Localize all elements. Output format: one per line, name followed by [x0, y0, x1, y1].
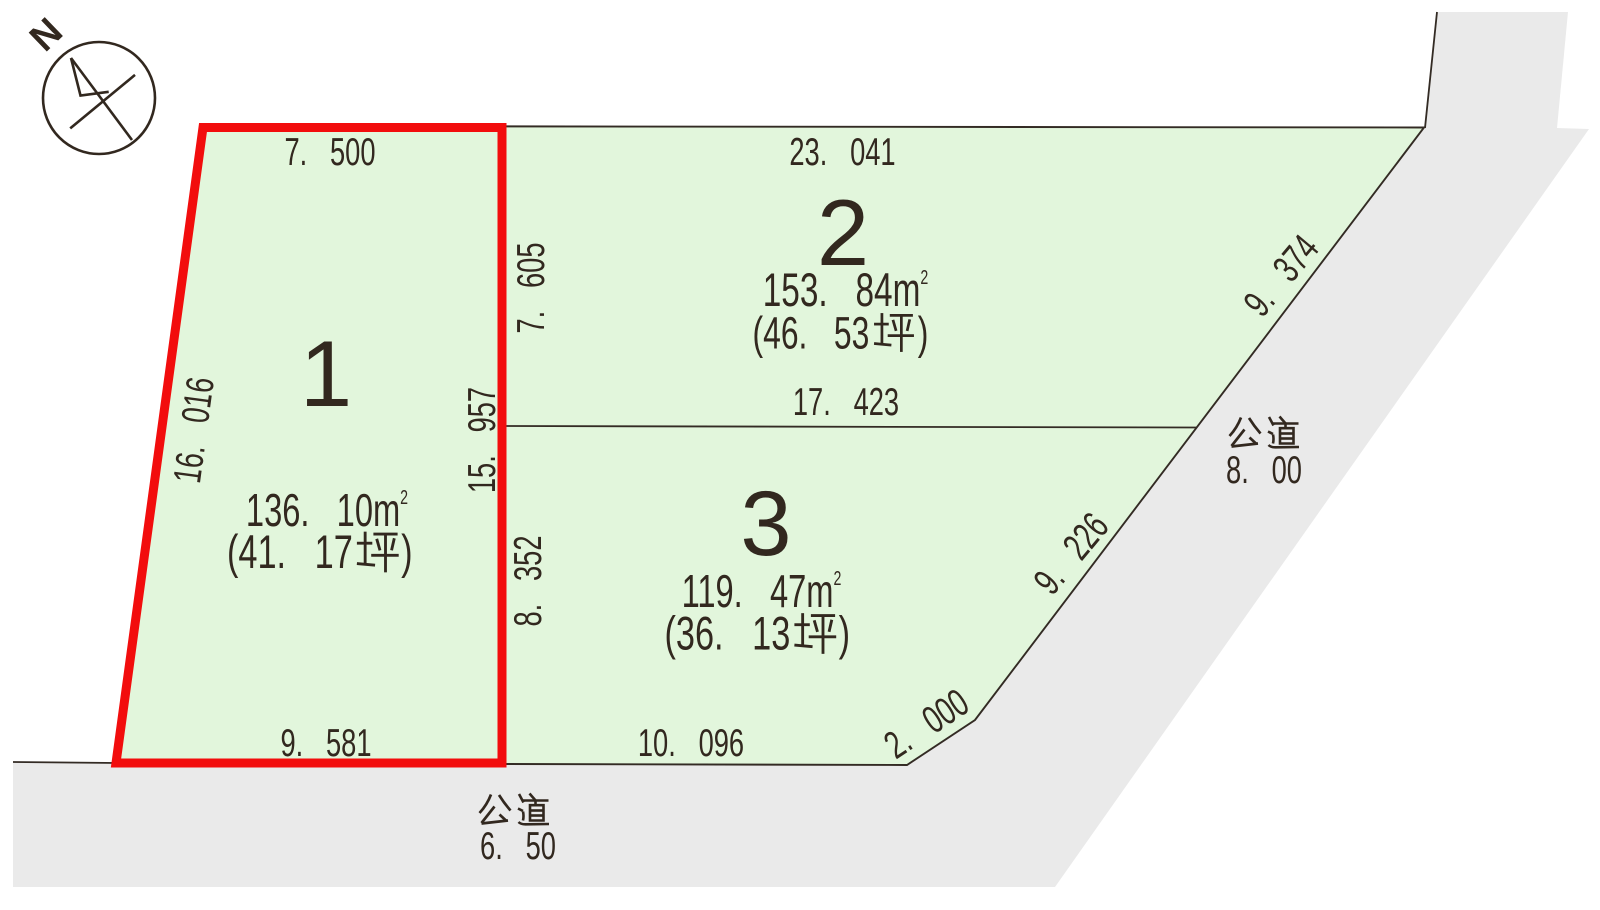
svg-text:3: 3 — [740, 473, 791, 575]
svg-text:17. 423: 17. 423 — [793, 381, 899, 424]
svg-text:1: 1 — [300, 321, 352, 426]
svg-text:15. 957: 15. 957 — [461, 387, 504, 493]
svg-text:): ) — [839, 607, 850, 660]
svg-text:(41. 17: (41. 17 — [227, 526, 353, 579]
svg-text:6. 50: 6. 50 — [480, 825, 556, 868]
svg-text:): ) — [401, 526, 412, 579]
svg-text:(46. 53: (46. 53 — [753, 308, 870, 359]
svg-text:23. 041: 23. 041 — [789, 131, 895, 174]
svg-text:7. 605: 7. 605 — [510, 242, 553, 333]
svg-text:7. 500: 7. 500 — [284, 131, 375, 174]
svg-text:9. 581: 9. 581 — [280, 722, 371, 765]
svg-text:): ) — [918, 308, 929, 359]
svg-text:8. 352: 8. 352 — [507, 535, 550, 626]
svg-text:10. 096: 10. 096 — [638, 722, 744, 765]
svg-text:(36. 13: (36. 13 — [665, 607, 791, 660]
svg-text:8. 00: 8. 00 — [1226, 449, 1302, 492]
